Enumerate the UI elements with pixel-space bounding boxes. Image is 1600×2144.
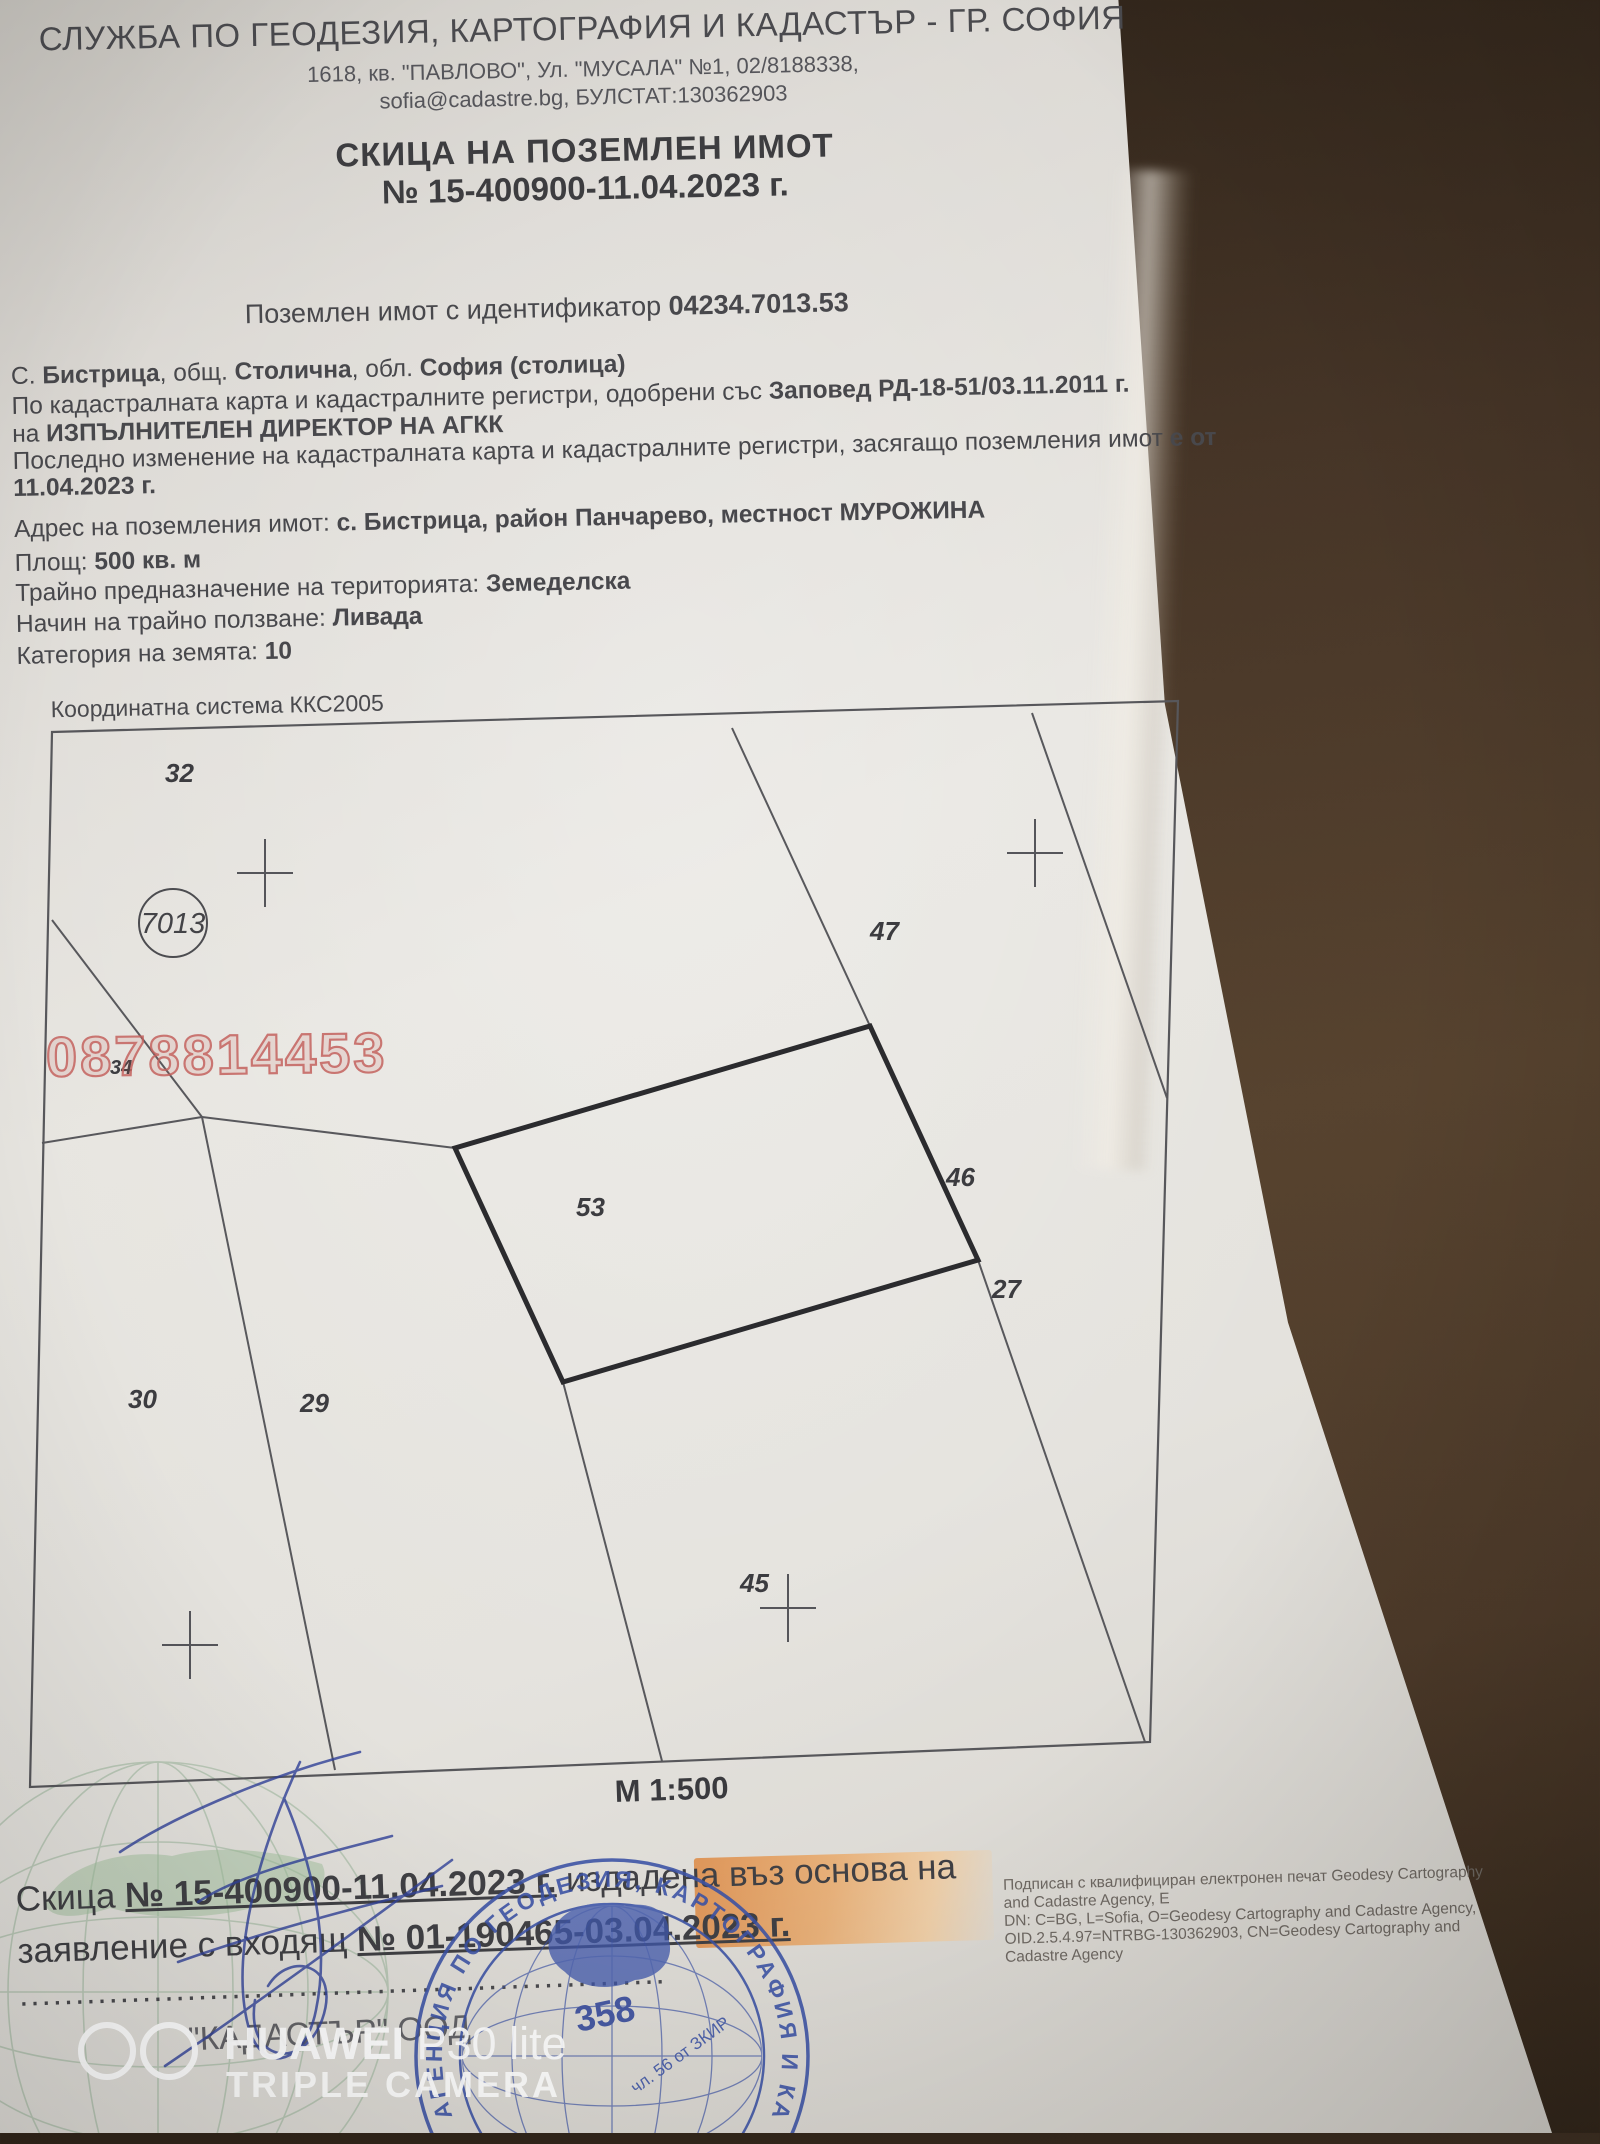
camera-model-text: HUAWEI P30 lite [224,2018,567,2070]
camera-logo-circle-icon [78,2022,136,2080]
camera-model: P30 lite [404,2018,567,2069]
round-blue-stamp: АГЕНЦИЯ ПО ГЕОДЕЗИЯ, КАРТОГРАФИЯ И КАДАС… [0,0,808,2133]
photographed-cadastral-sketch: { "office": { "name": "СЛУЖБА ПО ГЕОДЕЗИ… [0,0,1600,2133]
stamp-bulgaria-shape [548,1903,670,1987]
stamp-and-signature: АГЕНЦИЯ ПО ГЕОДЕЗИЯ, КАРТОГРАФИЯ И КАДАС… [0,0,1600,2133]
svg-text:АГЕНЦИЯ ПО ГЕОДЕЗИЯ, КАРТОГРАФ: АГЕНЦИЯ ПО ГЕОДЕЗИЯ, КАРТОГРАФИЯ И КАДАС… [0,0,803,2127]
camera-sub-text: TRIPLE CAMERA [226,2064,561,2106]
camera-logo-circle-icon [140,2022,198,2080]
stamp-number: 358 [571,1987,638,2040]
camera-brand: HUAWEI [224,2018,404,2069]
stamp-arc-text: АГЕНЦИЯ ПО ГЕОДЕЗИЯ, КАРТОГРАФИЯ И КАДАС… [0,0,803,2127]
stamp-law-text: чл. 56 от ЗКИР [627,2013,733,2097]
